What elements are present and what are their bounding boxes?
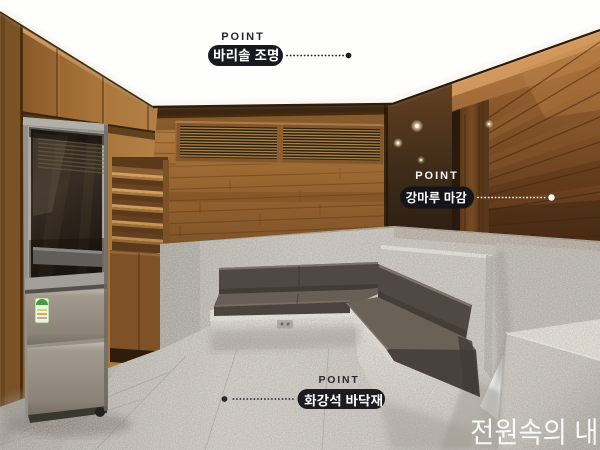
svg-text:POINT: POINT xyxy=(318,374,359,386)
svg-text:POINT: POINT xyxy=(221,31,265,43)
svg-text:POINT: POINT xyxy=(415,170,459,182)
